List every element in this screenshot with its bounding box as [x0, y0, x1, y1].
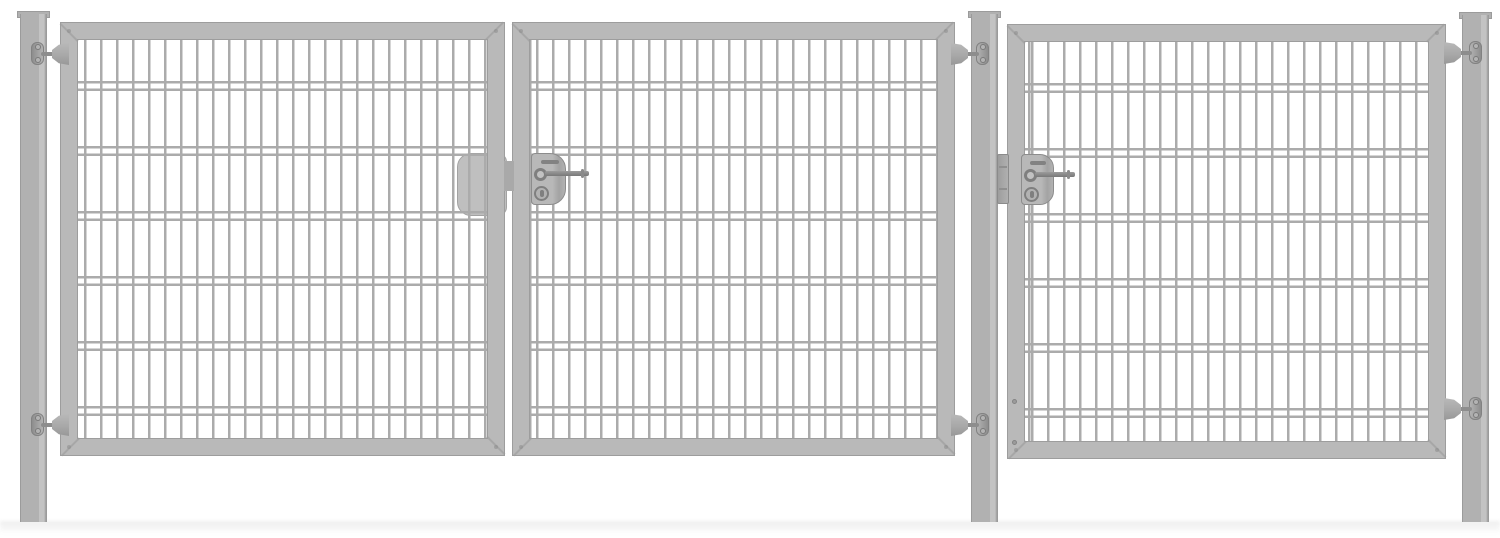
hinge-bolt: [980, 44, 986, 50]
lock-handle-lever: [1035, 172, 1075, 177]
frame-screw: [944, 29, 948, 33]
frame-screw: [67, 29, 71, 33]
frame-screw: [1435, 31, 1439, 35]
frame-screw: [1014, 31, 1018, 35]
hinge-right-post-top: [1444, 41, 1482, 65]
hinge-bolt: [980, 57, 986, 63]
frame-rivet: [1012, 399, 1017, 404]
mesh-panel: [530, 40, 937, 438]
gate-panel-1: [61, 23, 504, 455]
hinge-right-post-bottom: [1444, 397, 1482, 421]
lock-latch: [504, 161, 514, 191]
hinge-bolt: [35, 415, 41, 421]
hinge-cone: [951, 414, 968, 436]
mesh-panel: [1025, 42, 1428, 441]
hinge-bolt: [1473, 399, 1479, 405]
hinge-bolt: [35, 44, 41, 50]
gate-panel-2: [513, 23, 954, 455]
frame-screw: [519, 445, 523, 449]
hinge-left-post-bottom: [31, 413, 69, 437]
frame-screw: [519, 29, 523, 33]
hinge-left-post-top: [31, 42, 69, 66]
hinge-bolt: [1473, 56, 1479, 62]
frame-screw: [944, 445, 948, 449]
ground-shadow: [0, 521, 1500, 534]
hinge-cone: [951, 43, 968, 65]
hinge-middle-post-top: [951, 42, 989, 66]
gate-panel-3: [1008, 25, 1445, 458]
hinge-cone: [52, 414, 69, 436]
hinge-cone: [1444, 42, 1461, 64]
lock-bolt-slot: [1030, 161, 1046, 165]
fence-post-right: [1462, 15, 1489, 522]
frame-screw: [67, 445, 71, 449]
lock-bolt-slot: [541, 160, 559, 164]
hinge-bolt: [1473, 412, 1479, 418]
double-gate-lock: [531, 153, 566, 205]
fence-post-middle: [971, 14, 998, 522]
hinge-bolt: [35, 57, 41, 63]
frame-screw: [1014, 448, 1018, 452]
hinge-middle-post-bottom: [951, 413, 989, 437]
hinge-cone: [52, 43, 69, 65]
fence-gate-product-image: [0, 0, 1500, 538]
side-gate-lock: [1021, 154, 1054, 205]
lock-cylinder: [534, 186, 549, 201]
lock-post-bracket: [997, 154, 1009, 204]
fence-post-left: [20, 14, 47, 522]
hinge-bolt: [980, 415, 986, 421]
frame-screw: [494, 29, 498, 33]
hinge-bolt: [35, 428, 41, 434]
hinge-cone: [1444, 398, 1461, 420]
lock-cylinder: [1024, 187, 1039, 202]
frame-screw: [1435, 448, 1439, 452]
frame-screw: [494, 445, 498, 449]
frame-rivet: [1012, 440, 1017, 445]
mesh-panel: [78, 40, 487, 438]
hinge-bolt: [1473, 43, 1479, 49]
lock-handle-lever: [545, 171, 589, 176]
hinge-bolt: [980, 428, 986, 434]
